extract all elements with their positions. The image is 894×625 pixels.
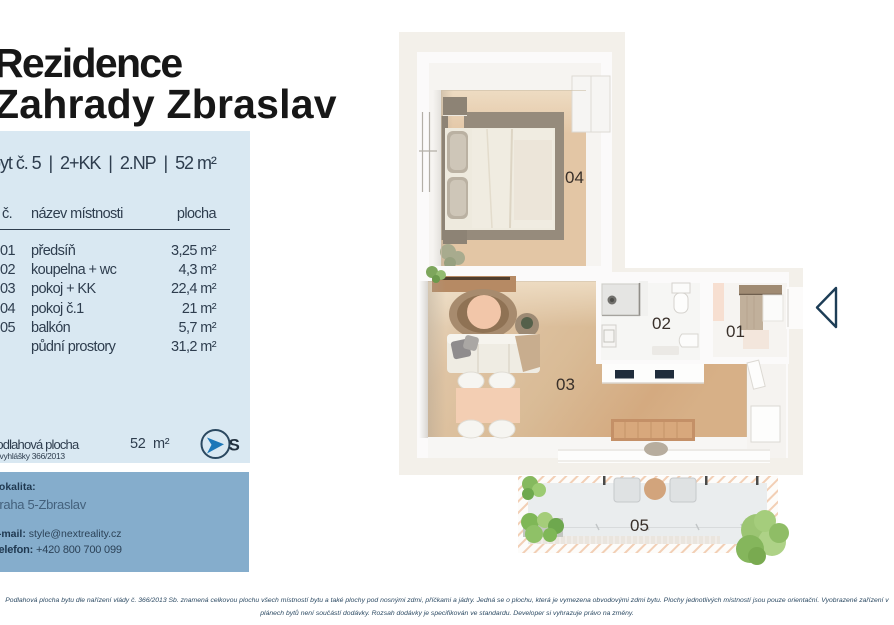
svg-text:02: 02 bbox=[652, 314, 671, 333]
svg-text:04: 04 bbox=[565, 168, 584, 187]
svg-text:05: 05 bbox=[630, 516, 649, 535]
svg-text:03: 03 bbox=[556, 375, 575, 394]
svg-text:01: 01 bbox=[726, 322, 745, 341]
